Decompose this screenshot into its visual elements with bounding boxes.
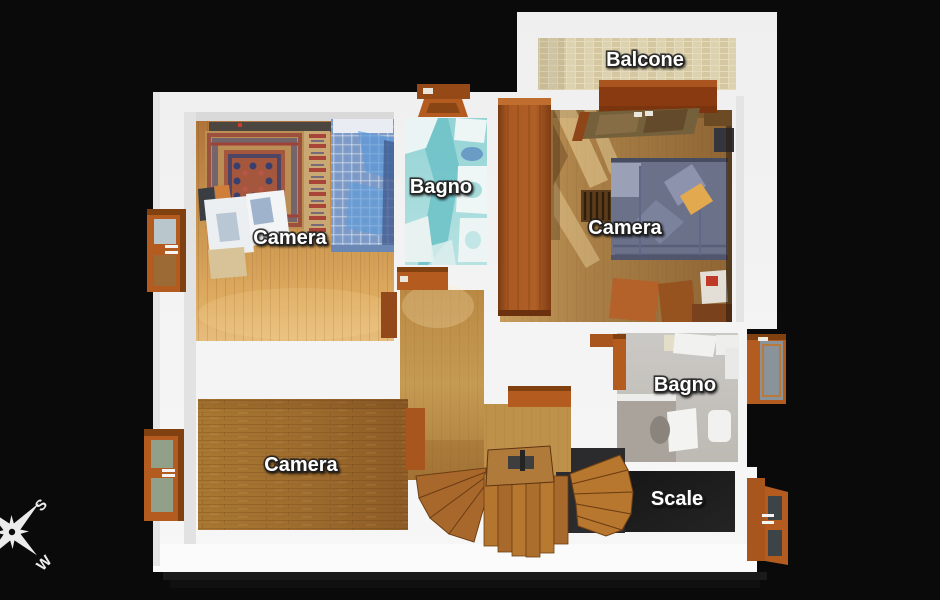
svg-text:Camera: Camera	[253, 227, 327, 249]
svg-text:Bagno: Bagno	[410, 176, 472, 198]
svg-text:Bagno: Bagno	[654, 374, 716, 396]
svg-text:Balcone: Balcone	[606, 49, 684, 71]
svg-text:Camera: Camera	[264, 454, 338, 476]
svg-text:Scale: Scale	[651, 488, 703, 510]
svg-text:Camera: Camera	[588, 217, 662, 239]
